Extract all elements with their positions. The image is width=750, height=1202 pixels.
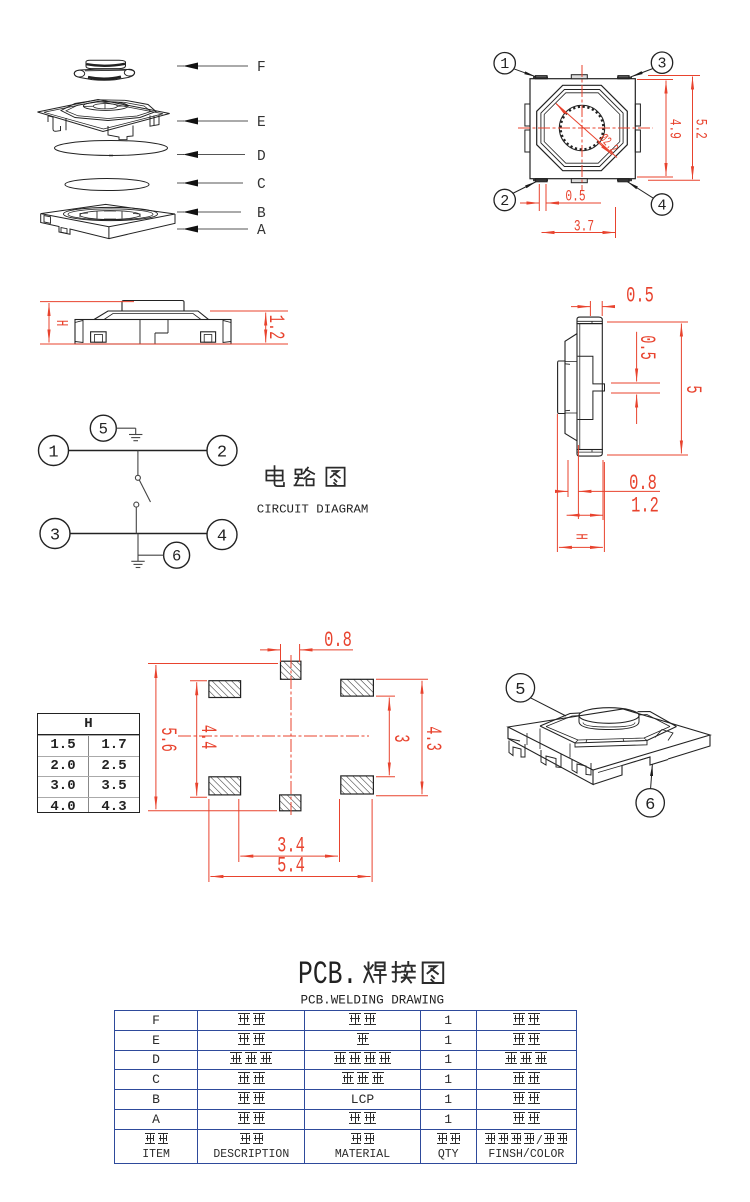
- svg-text:5.6: 5.6: [155, 727, 179, 752]
- svg-text:6: 6: [172, 548, 181, 566]
- svg-text:3.7: 3.7: [574, 219, 594, 236]
- svg-text:D: D: [257, 149, 266, 165]
- svg-text:E: E: [257, 115, 266, 131]
- svg-text:H: H: [51, 320, 70, 326]
- svg-text:3: 3: [657, 56, 666, 73]
- svg-text:0.5: 0.5: [626, 283, 654, 308]
- svg-text:C: C: [257, 177, 266, 193]
- svg-text:4.9: 4.9: [665, 119, 682, 139]
- svg-text:0.8: 0.8: [324, 627, 352, 652]
- svg-text:5: 5: [515, 681, 525, 700]
- svg-text:CIRCUIT DIAGRAM: CIRCUIT DIAGRAM: [257, 502, 369, 516]
- svg-text:Ø2.2: Ø2.2: [596, 132, 620, 157]
- svg-text:PCB.WELDING DRAWING: PCB.WELDING DRAWING: [301, 993, 445, 1007]
- svg-text:6: 6: [645, 796, 655, 815]
- svg-text:3: 3: [388, 734, 412, 742]
- svg-text:1: 1: [48, 444, 58, 463]
- svg-text:H: H: [570, 533, 589, 539]
- svg-text:A: A: [257, 223, 266, 239]
- svg-text:2: 2: [217, 444, 227, 463]
- svg-text:4.4: 4.4: [195, 725, 219, 750]
- svg-text:4: 4: [657, 198, 666, 215]
- svg-text:PCB.: PCB.: [298, 956, 357, 993]
- svg-text:5: 5: [680, 385, 704, 393]
- svg-text:2: 2: [500, 193, 509, 210]
- svg-text:5.2: 5.2: [691, 119, 708, 139]
- svg-text:F: F: [257, 60, 266, 76]
- svg-text:1.2: 1.2: [263, 315, 287, 340]
- svg-text:B: B: [257, 206, 266, 222]
- svg-text:0.5: 0.5: [634, 335, 658, 360]
- svg-text:1: 1: [500, 56, 509, 73]
- svg-text:4.3: 4.3: [420, 726, 444, 751]
- svg-text:3: 3: [50, 527, 60, 546]
- svg-text:5: 5: [99, 421, 108, 439]
- svg-text:1.2: 1.2: [631, 493, 659, 518]
- svg-text:5.4: 5.4: [277, 853, 305, 878]
- svg-text:4: 4: [217, 528, 227, 547]
- svg-text:0.5: 0.5: [565, 189, 585, 206]
